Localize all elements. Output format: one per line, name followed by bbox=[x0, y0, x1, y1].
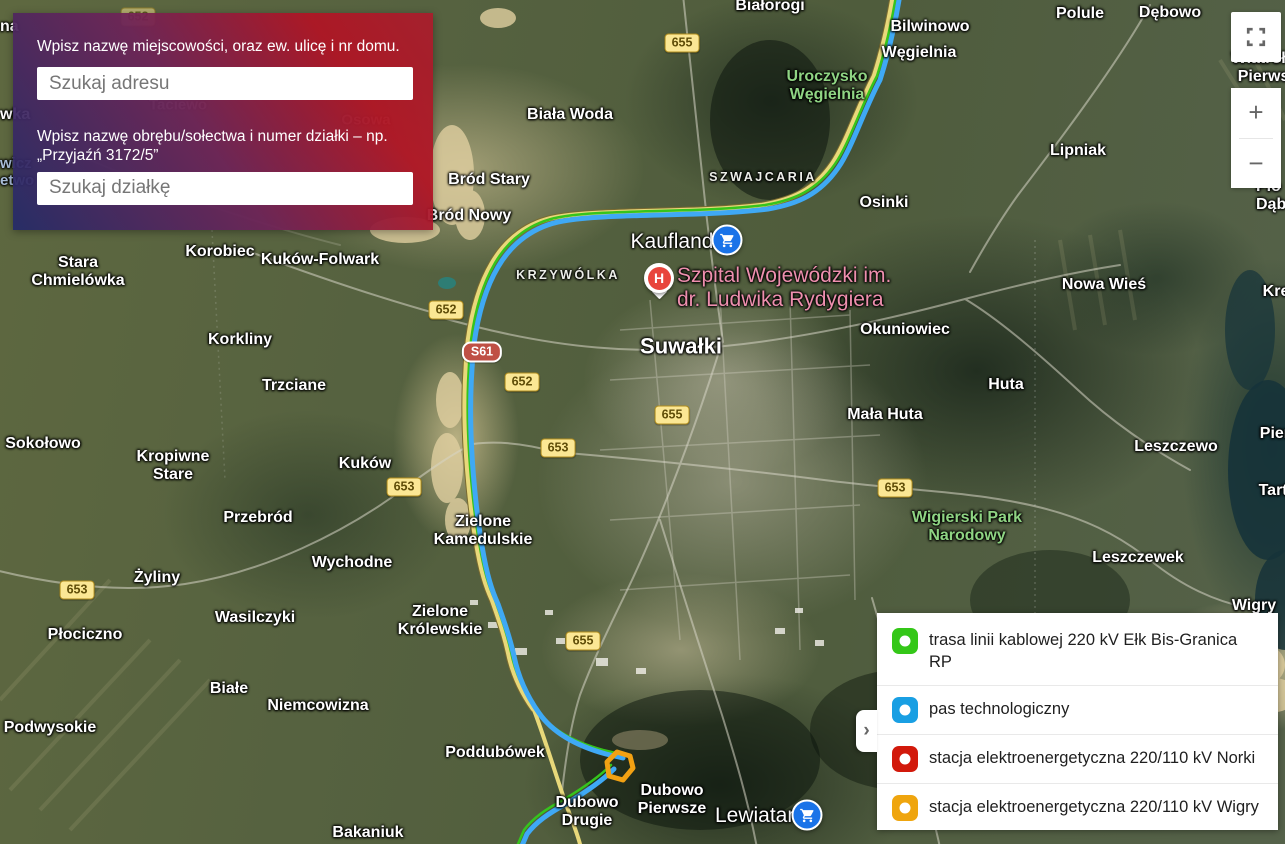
legend-panel: › trasa linii kablowej 220 kV Ełk Bis-Gr… bbox=[877, 613, 1278, 830]
legend-color-icon bbox=[892, 795, 918, 821]
legend-item-1[interactable]: pas technologiczny bbox=[877, 685, 1278, 734]
parcel-search-label: Wpisz nazwę obrębu/sołectwa i numer dzia… bbox=[37, 128, 411, 165]
fullscreen-button[interactable] bbox=[1231, 12, 1281, 62]
address-search-input[interactable] bbox=[37, 67, 413, 100]
chevron-right-icon: › bbox=[863, 720, 869, 742]
legend-item-3[interactable]: stacja elektroenergetyczna 220/110 kV Wi… bbox=[877, 783, 1278, 832]
parcel-search-input[interactable] bbox=[37, 172, 413, 205]
legend-item-label: trasa linii kablowej 220 kV Ełk Bis-Gran… bbox=[929, 628, 1262, 674]
search-panel: Wpisz nazwę miejscowości, oraz ew. ulicę… bbox=[13, 13, 433, 230]
legend-item-label: stacja elektroenergetyczna 220/110 kV No… bbox=[929, 746, 1255, 770]
zoom-out-button[interactable]: − bbox=[1231, 139, 1281, 189]
legend-color-icon bbox=[892, 697, 918, 723]
lewiatan-marker[interactable] bbox=[792, 800, 823, 831]
shopping-cart-icon bbox=[799, 807, 815, 823]
legend-item-2[interactable]: stacja elektroenergetyczna 220/110 kV No… bbox=[877, 734, 1278, 783]
kaufland-marker[interactable] bbox=[712, 225, 743, 256]
map-application: Stara ChmielówkaKorobiecKuków-FolwarkKor… bbox=[0, 0, 1285, 844]
address-search-label: Wpisz nazwę miejscowości, oraz ew. ulicę… bbox=[37, 38, 411, 56]
legend-color-icon bbox=[892, 746, 918, 772]
zoom-control: + − bbox=[1231, 88, 1281, 188]
zoom-in-button[interactable]: + bbox=[1231, 88, 1281, 138]
industrial-buildings bbox=[470, 600, 824, 674]
hospital-marker[interactable]: H bbox=[644, 263, 674, 303]
fullscreen-icon bbox=[1246, 27, 1266, 47]
legend-items: trasa linii kablowej 220 kV Ełk Bis-Gran… bbox=[877, 617, 1278, 832]
legend-color-icon bbox=[892, 628, 918, 654]
legend-collapse-button[interactable]: › bbox=[856, 710, 877, 752]
expressway-road bbox=[465, 0, 894, 709]
hospital-h-icon: H bbox=[648, 267, 671, 290]
hospital-pin: H bbox=[644, 263, 674, 293]
legend-item-0[interactable]: trasa linii kablowej 220 kV Ełk Bis-Gran… bbox=[877, 617, 1278, 685]
shopping-cart-icon bbox=[719, 232, 735, 248]
legend-item-label: pas technologiczny bbox=[929, 697, 1069, 721]
legend-item-label: stacja elektroenergetyczna 220/110 kV Wi… bbox=[929, 795, 1259, 819]
